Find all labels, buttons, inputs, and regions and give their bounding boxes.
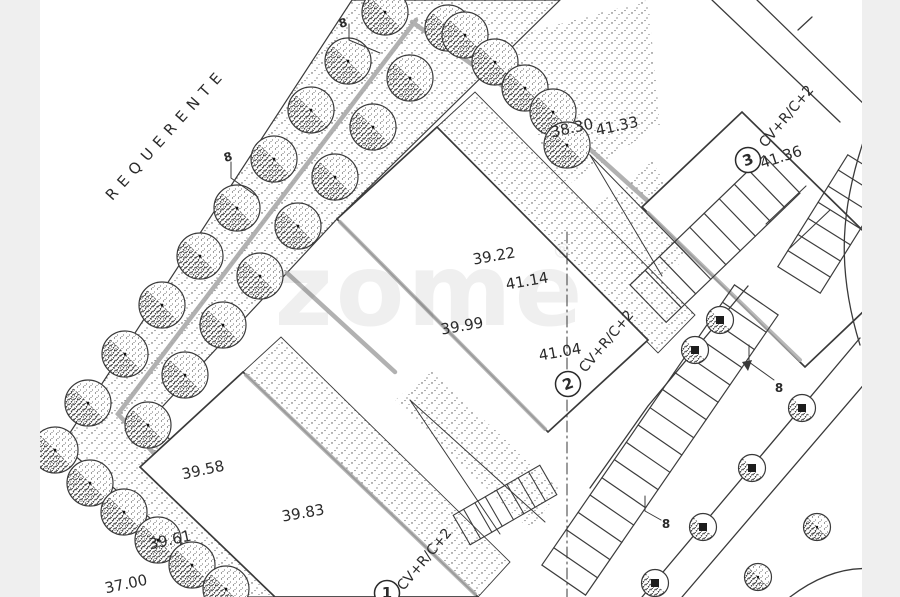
tree-icon — [325, 38, 371, 84]
zome-watermark: zome ® — [275, 232, 586, 349]
tree-icon — [214, 185, 260, 231]
site-plan-drawing: REQUERENTE 39.22 41.14 39.99 41.04 CV+R/… — [0, 0, 900, 597]
tree-icon — [162, 352, 208, 398]
plot-number-2: 2 — [556, 372, 581, 397]
point-marker-8-bottom: 8 — [662, 517, 670, 531]
tree-icon — [288, 87, 334, 133]
tree-icon — [200, 302, 246, 348]
tree-icon — [312, 154, 358, 200]
grate-tree-icon — [641, 570, 668, 597]
grate-tree-icon — [681, 337, 708, 364]
grate-tree-icon — [689, 514, 716, 541]
tree-icon — [803, 514, 830, 541]
point-marker-8-right: 8 — [775, 381, 783, 395]
tree-icon — [387, 55, 433, 101]
tree-icon — [102, 331, 148, 377]
tree-icon — [177, 233, 223, 279]
svg-text:zome: zome — [275, 232, 586, 349]
grate-tree-icon — [788, 395, 815, 422]
registered-mark-icon: ® — [552, 239, 572, 263]
tree-icon — [350, 104, 396, 150]
tree-icon — [744, 564, 771, 591]
grate-tree-icon — [706, 307, 733, 334]
grate-tree-icon — [738, 455, 765, 482]
site-plan-page: REQUERENTE 39.22 41.14 39.99 41.04 CV+R/… — [0, 0, 900, 597]
svg-text:1: 1 — [382, 584, 392, 597]
tree-icon — [125, 402, 171, 448]
tree-icon — [251, 136, 297, 182]
plot-number-3: 3 — [736, 148, 761, 173]
tree-icon — [65, 380, 111, 426]
tree-icon — [139, 282, 185, 328]
